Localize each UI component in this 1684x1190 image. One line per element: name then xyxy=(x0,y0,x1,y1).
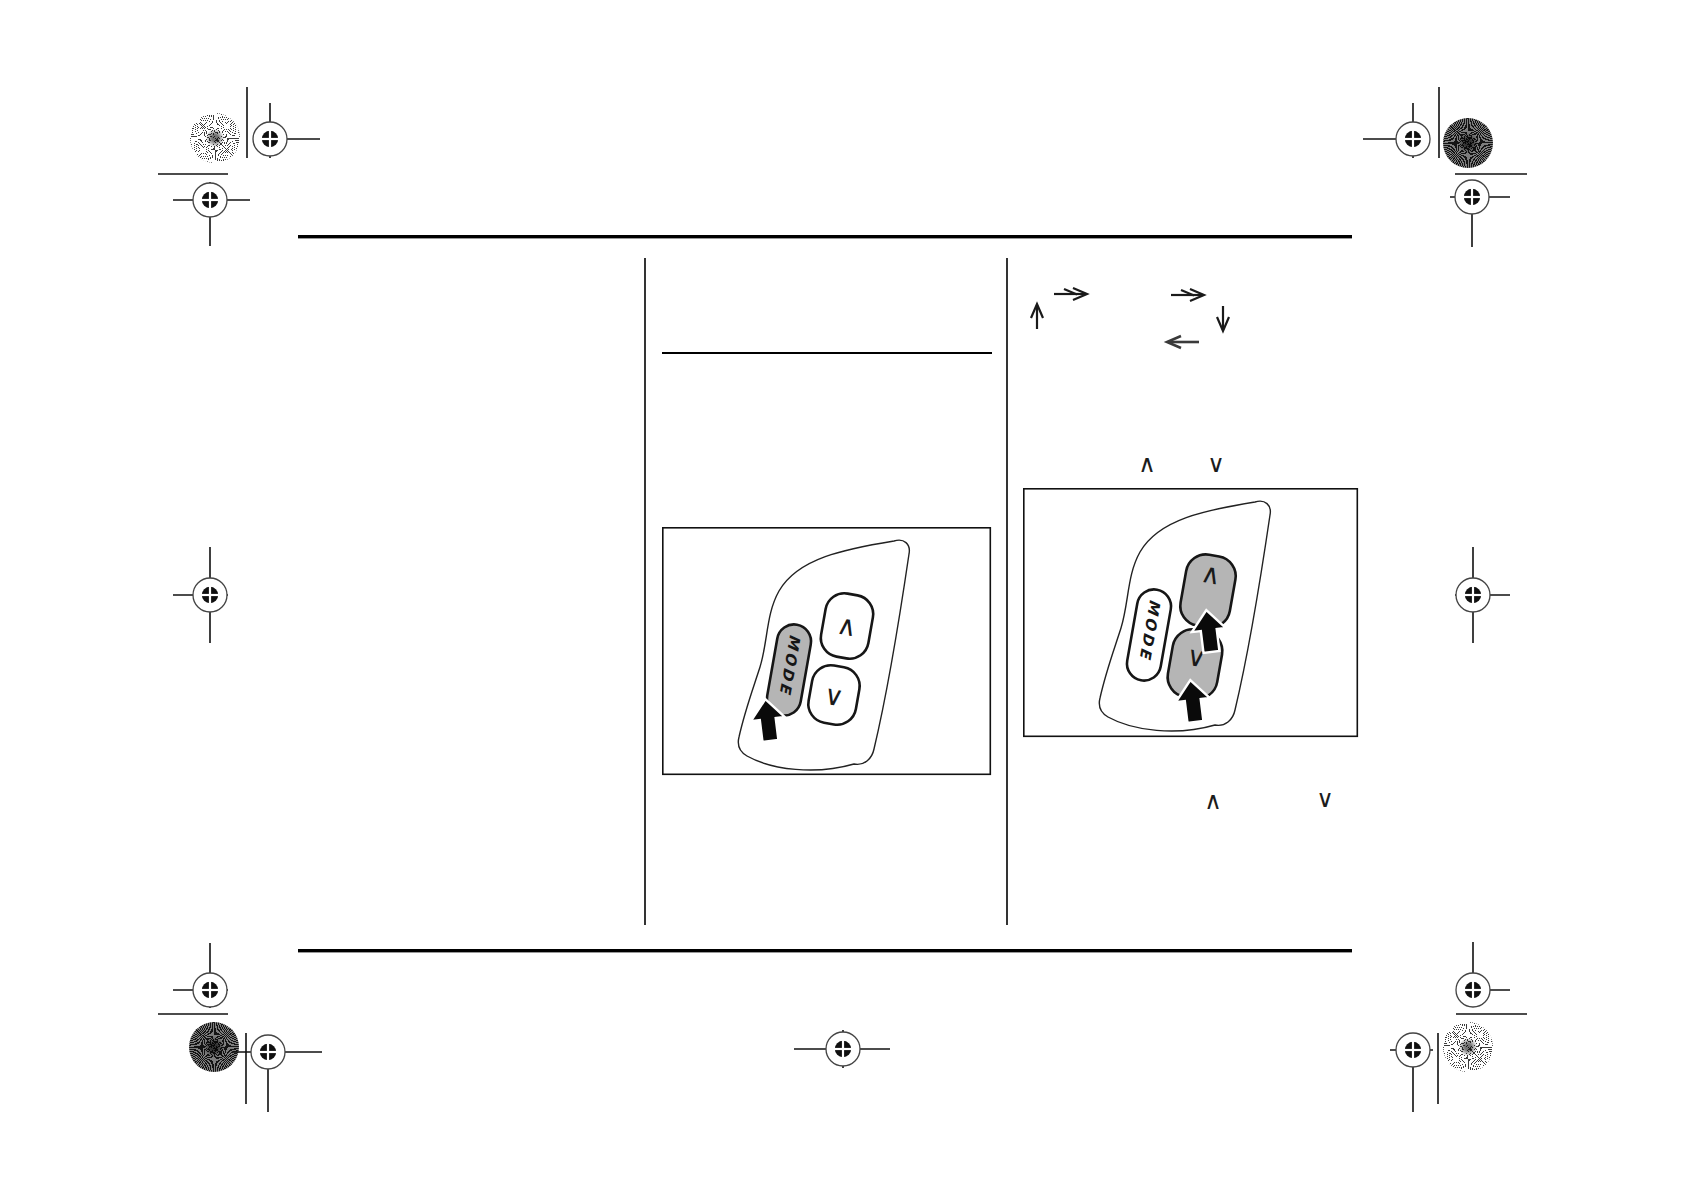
arrow-down-icon xyxy=(1217,306,1229,331)
registration-target-icon xyxy=(193,578,227,612)
inline-up-chevron-glyph: ∧ xyxy=(1198,789,1228,813)
registration-target-icon xyxy=(253,122,287,156)
figure-seek-press: MODE ∧ ∨ xyxy=(1024,489,1358,737)
registration-marks-top-right xyxy=(1363,87,1527,247)
registration-marks-bottom-right xyxy=(1390,942,1527,1112)
registration-marks-top-left xyxy=(158,87,320,246)
inline-down-chevron-glyph: ∨ xyxy=(1310,787,1340,811)
registration-target-icon xyxy=(1456,578,1490,612)
bottom-rule xyxy=(298,949,1352,952)
registration-target-icon xyxy=(1455,180,1489,214)
arrow-up-icon xyxy=(1031,304,1043,329)
inline-up-chevron-glyph: ∧ xyxy=(1132,452,1162,476)
registration-target-icon xyxy=(1396,122,1430,156)
figure-mode-press: MODE ∧ ∨ xyxy=(663,528,991,775)
registration-target-icon xyxy=(826,1032,860,1066)
tune-seek-arrow-icons xyxy=(1031,288,1229,348)
registration-marks-bottom-left xyxy=(158,943,322,1112)
manual-page: MODE ∧ ∨ MODE ∧ xyxy=(0,0,1684,1190)
arrow-right-icon xyxy=(1171,289,1204,301)
page-graphics: MODE ∧ ∨ MODE ∧ xyxy=(0,0,1684,1190)
registration-target-icon xyxy=(193,973,227,1007)
registration-target-icon xyxy=(1396,1033,1430,1067)
arrow-left-icon xyxy=(1167,336,1199,348)
top-rule xyxy=(298,235,1352,238)
registration-target-icon xyxy=(1456,973,1490,1007)
registration-target-icon xyxy=(251,1035,285,1069)
arrow-right-icon xyxy=(1054,288,1087,300)
registration-target-icon xyxy=(193,183,227,217)
inline-down-chevron-glyph: ∨ xyxy=(1201,452,1231,476)
